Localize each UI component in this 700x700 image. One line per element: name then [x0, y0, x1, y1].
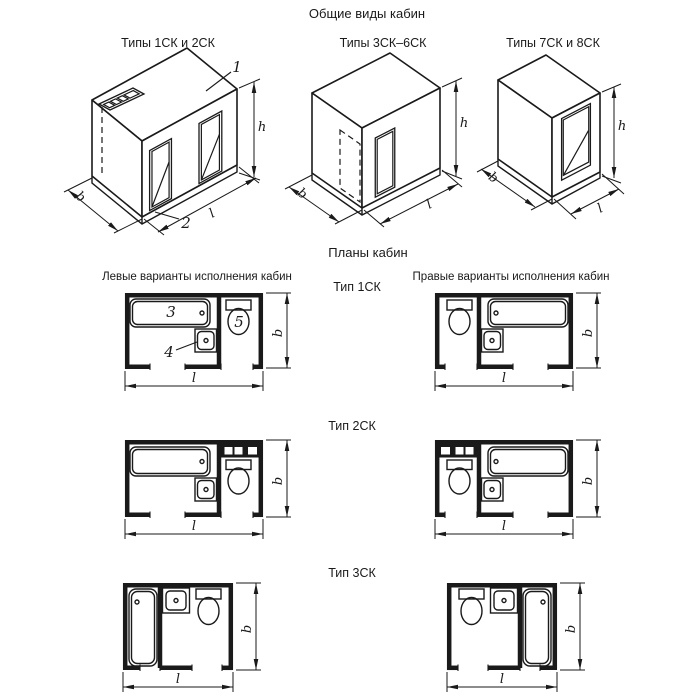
dim-b: b — [72, 189, 88, 206]
dim-l: l — [502, 519, 506, 534]
dim-l: l — [176, 672, 180, 687]
plans-title: Планы кабин — [328, 245, 407, 260]
dim-h: h — [460, 116, 468, 131]
right-variants-label: Правые варианты исполнения кабин — [413, 271, 610, 283]
plan-3sk-right: l b — [447, 583, 585, 692]
iso-view-7sk-8sk: b l h — [477, 55, 626, 219]
left-variants-label: Левые варианты исполнения кабин — [102, 271, 292, 283]
dim-l: l — [192, 519, 196, 534]
main-title: Общие виды кабин — [309, 6, 425, 21]
callout-1: 1 — [232, 58, 242, 76]
view3-label: Типы 7СК и 8СК — [506, 36, 600, 50]
dim-b: b — [240, 625, 255, 633]
dim-l: l — [595, 201, 606, 216]
callout-3: 3 — [166, 303, 176, 321]
callout-5: 5 — [234, 313, 244, 331]
dim-h: h — [258, 120, 266, 135]
plan-3sk-left: l b — [123, 583, 261, 692]
dim-l: l — [500, 672, 504, 687]
dim-b: b — [581, 477, 596, 485]
figure-svg: Общие виды кабин Типы 1СК и 2СК Типы 3СК… — [0, 0, 700, 700]
gost-cabin-figure: Общие виды кабин Типы 1СК и 2СК Типы 3СК… — [0, 0, 700, 700]
type-2sk-label: Тип 2СК — [328, 419, 376, 433]
plan-2sk-left: l b — [125, 440, 291, 539]
dim-l: l — [207, 206, 218, 221]
view2-label: Типы 3СК–6СК — [340, 36, 427, 50]
dim-h: h — [618, 119, 626, 134]
dim-b: b — [485, 170, 500, 187]
dim-b: b — [271, 329, 286, 337]
iso-view-3sk-6sk: b l h — [285, 53, 468, 227]
door-opening — [375, 128, 395, 197]
plan-1sk-left: 3 4 5 l b — [125, 293, 291, 391]
plan-1sk-right: l b — [435, 293, 601, 391]
type-3sk-label: Тип 3СК — [328, 566, 376, 580]
iso-view-1sk-2sk: 1 2 b l h — [64, 48, 266, 235]
dim-b: b — [271, 477, 286, 485]
dim-b: b — [564, 625, 579, 633]
dim-l: l — [192, 371, 196, 386]
callout-4: 4 — [163, 343, 174, 361]
type-1sk-label: Тип 1СК — [333, 280, 381, 294]
dim-b: b — [581, 329, 596, 337]
dim-l: l — [424, 197, 435, 212]
plan-2sk-right: l b — [435, 440, 601, 539]
view1-label: Типы 1СК и 2СК — [121, 36, 215, 50]
dim-l: l — [502, 371, 506, 386]
callout-4-leader — [176, 342, 197, 350]
